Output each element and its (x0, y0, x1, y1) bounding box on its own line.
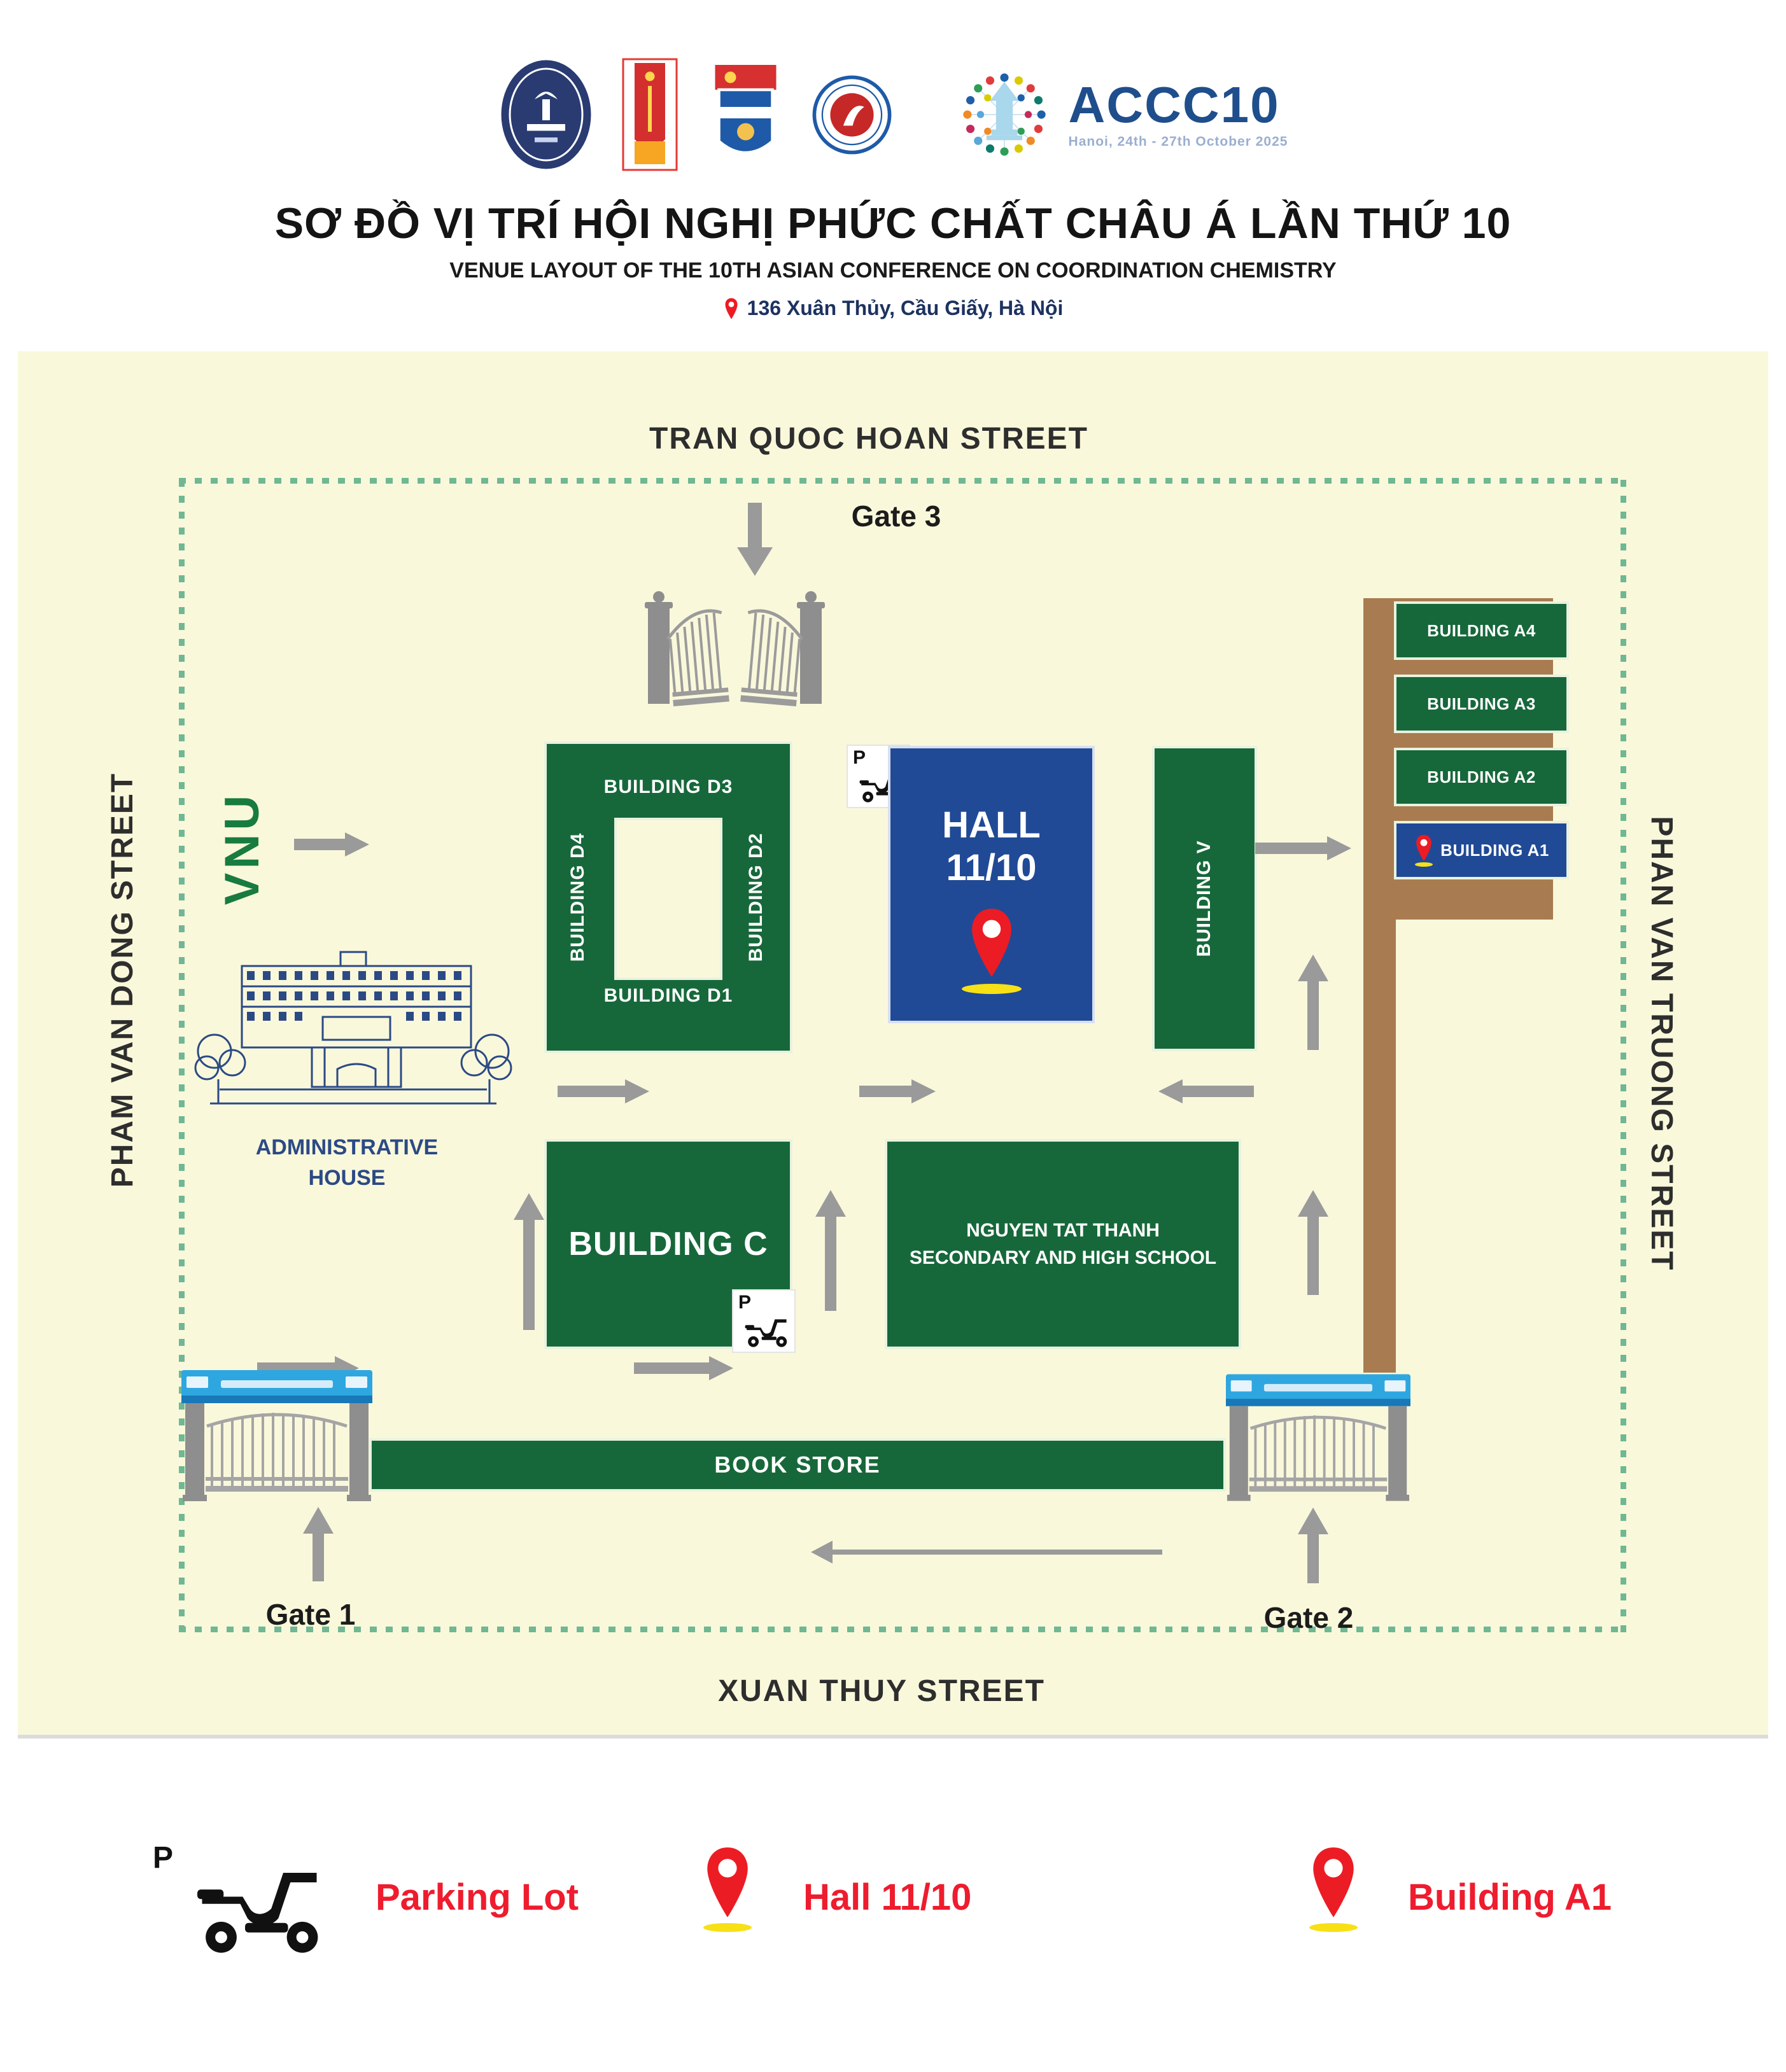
flag-shield-logo-icon (706, 57, 785, 172)
vnu-entry-arrow-icon (294, 832, 369, 857)
legend-hall-label: Hall 11/10 (803, 1876, 971, 1919)
logo-row: ACCC10 Hanoi, 24th - 27th October 2025 (0, 57, 1786, 172)
gate3-entry-arrow-icon (737, 503, 773, 576)
building-v-label: BUILDING V (1192, 790, 1217, 1007)
building-a3: BUILDING A3 (1394, 675, 1569, 733)
hall-pin-shadow (962, 984, 1022, 994)
accc10-tagline: Hanoi, 24th - 27th October 2025 (1069, 134, 1288, 150)
street-label-right: PHAN VAN TRUONG STREET (1643, 741, 1679, 1346)
school-building: NGUYEN TAT THANH SECONDARY AND HIGH SCHO… (885, 1139, 1241, 1349)
hall-map-pin-icon (965, 906, 1018, 980)
legend-a1-pin (1306, 1844, 1361, 1932)
building-a1: BUILDING A1 (1394, 821, 1569, 879)
flow-arrow-mid-1 (558, 1079, 649, 1103)
round-seal-logo-icon (812, 75, 892, 155)
flow-arrow-up-left-of-c (514, 1193, 544, 1330)
school-label-line1: NGUYEN TAT THANH (966, 1217, 1160, 1245)
map-pin-icon (1306, 1844, 1361, 1921)
building-d4-label: BUILDING D4 (565, 789, 591, 1005)
gate1-icon (181, 1370, 372, 1502)
administrative-house-illustration (181, 942, 525, 1126)
legend-motorbike-icon (188, 1863, 341, 1959)
street-label-bottom: XUAN THUY STREET (659, 1674, 1104, 1709)
legend-a1-label: Building A1 (1408, 1876, 1612, 1919)
venue-map-poster: ACCC10 Hanoi, 24th - 27th October 2025 S… (0, 0, 1786, 2072)
administrative-house-label: ADMINISTRATIVE HOUSE (220, 1133, 474, 1193)
accc10-logo: ACCC10 Hanoi, 24th - 27th October 2025 (957, 64, 1288, 165)
school-label-line2: SECONDARY AND HIGH SCHOOL (910, 1244, 1216, 1272)
hall-label-line2: 11/10 (946, 847, 1037, 890)
vnu-label: VNU (213, 753, 271, 944)
a1-map-pin-icon (1414, 834, 1434, 862)
accc10-molecule-icon (957, 64, 1052, 165)
boundary-dash-top (179, 478, 1626, 484)
hall-11-10: HALL 11/10 (888, 746, 1095, 1023)
address-row: 136 Xuân Thủy, Cầu Giấy, Hà Nội (0, 297, 1786, 320)
legend-parking-p: P (153, 1840, 173, 1875)
gate3-icon (644, 579, 826, 713)
red-banner-logo-icon (621, 57, 679, 172)
campus-map: TRAN QUOC HOAN STREET PHAM VAN DONG STRE… (18, 351, 1768, 1739)
boundary-dash-right (1621, 478, 1626, 1632)
hall-label-line1: HALL (942, 804, 1041, 847)
flow-arrow-to-a1 (1255, 836, 1351, 860)
flow-arrow-up-c-school (815, 1190, 846, 1311)
gate2-icon (1226, 1373, 1410, 1503)
gate1-entry-arrow-icon (303, 1507, 334, 1581)
gate2-label: Gate 2 (1232, 1600, 1385, 1635)
gate2-entry-arrow-icon (1298, 1508, 1328, 1583)
accc10-wordmark: ACCC10 (1069, 80, 1288, 130)
flow-arrow-low-2 (634, 1356, 733, 1380)
building-a1-pin (1414, 834, 1434, 867)
vnu-university-logo-icon (498, 57, 594, 172)
page-title: SƠ ĐỒ VỊ TRÍ HỘI NGHỊ PHỨC CHẤT CHÂU Á L… (0, 199, 1786, 248)
street-label-left: PHAM VAN DONG STREET (105, 694, 141, 1266)
flow-arrow-up-1 (1298, 955, 1328, 1050)
parking-lot-icon-building-c: P (733, 1291, 794, 1352)
legend-parking-label: Parking Lot (376, 1876, 579, 1919)
building-a4: BUILDING A4 (1394, 601, 1569, 660)
page-subtitle: VENUE LAYOUT OF THE 10TH ASIAN CONFERENC… (0, 258, 1786, 283)
address-text: 136 Xuân Thủy, Cầu Giấy, Hà Nội (747, 297, 1064, 320)
legend-hall-pin (700, 1844, 755, 1932)
book-store: BOOK STORE (369, 1438, 1226, 1492)
motorbike-icon (743, 1316, 793, 1349)
map-pin-icon (700, 1844, 755, 1921)
address-pin-icon (723, 297, 740, 320)
flow-arrow-mid-left (1158, 1079, 1254, 1103)
building-d2-label: BUILDING D2 (743, 789, 769, 1005)
street-label-top: TRAN QUOC HOAN STREET (646, 421, 1092, 456)
d-ring-courtyard (614, 818, 722, 980)
gate1-label: Gate 1 (234, 1597, 387, 1632)
boundary-dash-bottom (179, 1627, 1626, 1632)
flow-arrow-up-2 (1298, 1190, 1328, 1295)
flow-arrow-exit-left (811, 1541, 1162, 1564)
gate3-label: Gate 3 (820, 499, 973, 533)
building-a2: BUILDING A2 (1394, 748, 1569, 806)
flow-arrow-mid-2 (859, 1079, 936, 1103)
